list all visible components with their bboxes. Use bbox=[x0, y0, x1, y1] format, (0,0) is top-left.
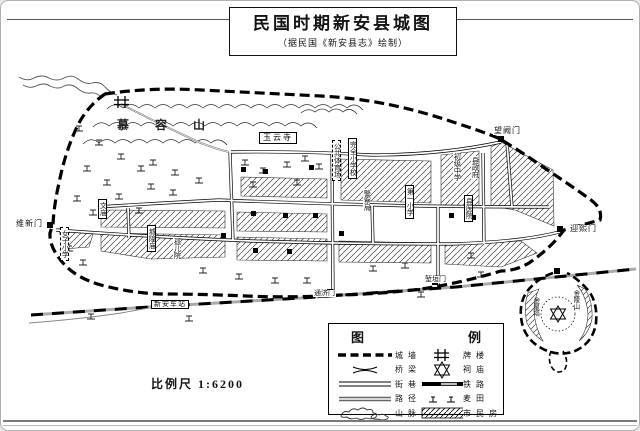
field-mark-icon bbox=[417, 292, 425, 297]
gate-mark bbox=[554, 268, 560, 274]
legend-label: 街巷 bbox=[395, 379, 421, 390]
building-mark bbox=[263, 169, 268, 174]
street-icon bbox=[337, 379, 395, 389]
legend-item: 祠庙 bbox=[421, 363, 502, 378]
field-mark-icon bbox=[171, 170, 179, 175]
field-mark-icon bbox=[271, 278, 279, 283]
gate-mark bbox=[327, 289, 333, 295]
field-mark-icon bbox=[283, 162, 291, 167]
legend-label: 牌楼 bbox=[463, 350, 489, 361]
legend-item: 铁路 bbox=[421, 377, 502, 392]
gate-mark bbox=[47, 222, 53, 228]
mountain-ridge bbox=[83, 105, 363, 146]
city-wall-icon bbox=[337, 350, 395, 360]
field-mark-icon bbox=[195, 178, 203, 183]
field-mark-icon bbox=[185, 316, 193, 321]
field-icon bbox=[421, 393, 463, 405]
legend-title: 图 例 bbox=[337, 327, 495, 346]
gate-mark bbox=[557, 226, 563, 232]
bridge-icon bbox=[337, 365, 395, 375]
railway-icon bbox=[421, 380, 463, 388]
map-subtitle: （据民国《新安县志》绘制） bbox=[278, 36, 408, 49]
legend-item: 桥梁 bbox=[337, 363, 421, 378]
gate-mark bbox=[498, 136, 504, 142]
building-mark bbox=[251, 211, 256, 216]
building-mark bbox=[339, 231, 344, 236]
building-mark bbox=[253, 248, 258, 253]
legend-label: 铁路 bbox=[463, 379, 489, 390]
field-mark-icon bbox=[103, 180, 111, 185]
field-mark-icon bbox=[149, 160, 157, 165]
legend-item: 麦田 bbox=[421, 392, 502, 407]
map-title: 民国时期新安县城图 bbox=[253, 14, 433, 34]
legend-item: 城墙 bbox=[337, 348, 421, 363]
field-mark-icon bbox=[117, 154, 125, 159]
building-mark bbox=[241, 167, 246, 172]
building-mark bbox=[221, 233, 226, 238]
field-mark-icon bbox=[73, 196, 81, 201]
legend-box: 图 例 城墙桥梁街巷路径山脉 牌楼祠庙铁路麦田市民房 bbox=[328, 323, 504, 415]
field-mark-icon bbox=[241, 160, 249, 165]
building-mark bbox=[313, 213, 318, 218]
field-mark-icon bbox=[79, 260, 87, 265]
legend-label: 路径 bbox=[395, 393, 421, 404]
star-of-david-icon bbox=[551, 306, 566, 322]
housing-icon bbox=[421, 407, 463, 419]
path-icon bbox=[337, 394, 395, 404]
field-mark-icon bbox=[235, 274, 243, 279]
field-mark-icon bbox=[83, 166, 91, 171]
field-mark-icon bbox=[137, 166, 145, 171]
legend-label: 祠庙 bbox=[463, 364, 489, 375]
legend-label: 市民房 bbox=[463, 408, 502, 419]
title-box: 民国时期新安县城图 （据民国《新安县志》绘制） bbox=[229, 7, 457, 56]
building-mark bbox=[283, 213, 288, 218]
gate-mark bbox=[432, 279, 438, 285]
building-mark bbox=[309, 165, 314, 170]
field-mark-icon bbox=[301, 156, 309, 161]
map-canvas bbox=[1, 1, 640, 431]
legend-label: 麦田 bbox=[463, 393, 489, 404]
field-mark-icon bbox=[369, 266, 377, 271]
building-mark bbox=[471, 215, 476, 220]
footpath bbox=[121, 104, 229, 152]
field-mark-icon bbox=[169, 190, 177, 195]
legend-title-right: 例 bbox=[468, 327, 481, 346]
legend-item: 市民房 bbox=[421, 406, 502, 421]
legend-item: 街巷 bbox=[337, 377, 421, 392]
building-mark bbox=[449, 213, 454, 218]
building-mark bbox=[287, 249, 292, 254]
scale-label: 比例尺 1:6200 bbox=[151, 375, 244, 392]
legend-label: 城墙 bbox=[395, 350, 421, 361]
field-mark-icon bbox=[147, 184, 155, 189]
map-page: 民国时期新安县城图 （据民国《新安县志》绘制） bbox=[0, 0, 640, 431]
field-mark-icon bbox=[315, 164, 323, 169]
legend-item: 山脉 bbox=[337, 406, 421, 421]
legend-label: 桥梁 bbox=[395, 364, 421, 375]
field-mark-icon bbox=[115, 194, 123, 199]
field-mark-icon bbox=[303, 278, 311, 283]
field-mark-icon bbox=[89, 210, 97, 215]
mountain-icon bbox=[337, 406, 395, 420]
legend-item: 路径 bbox=[337, 392, 421, 407]
field-mark-icon bbox=[199, 268, 207, 273]
field-mark-icon bbox=[401, 263, 409, 268]
legend-title-left: 图 bbox=[351, 327, 364, 346]
legend-label: 山脉 bbox=[395, 408, 421, 419]
